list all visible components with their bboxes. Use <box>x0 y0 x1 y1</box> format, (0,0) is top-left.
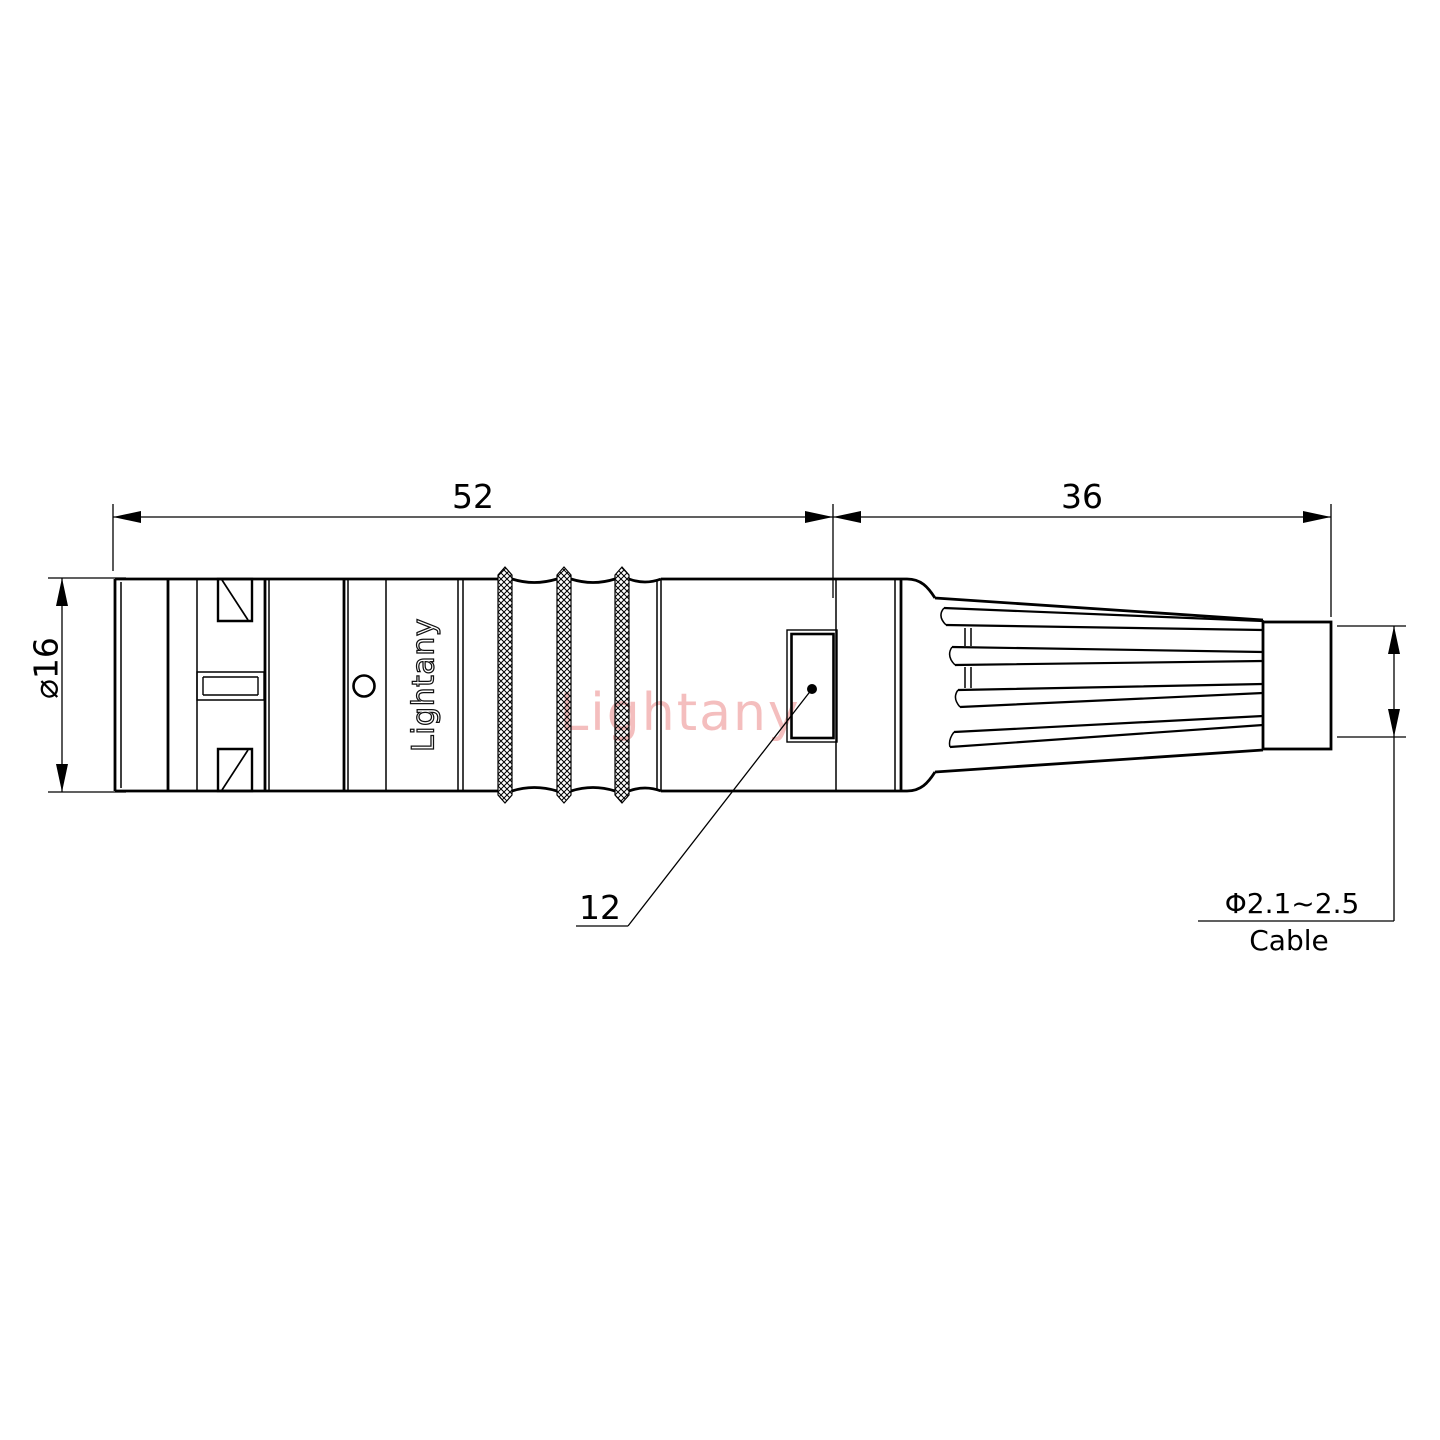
dimension-body-diameter: ⌀16 <box>27 578 127 792</box>
dim-36-label: 36 <box>1061 477 1103 516</box>
knurl-band <box>615 567 629 803</box>
cable-diameter-callout: Φ2.1~2.5 Cable <box>1198 626 1406 957</box>
ref-12-label: 12 <box>579 888 621 927</box>
dim-arrow-right <box>1303 511 1331 523</box>
watermark-text: Lightany <box>559 683 800 743</box>
dim-52-label: 52 <box>452 477 494 516</box>
dim-arrow-left <box>833 511 861 523</box>
cable-end-cap <box>1263 622 1331 749</box>
middle-recess <box>197 672 264 700</box>
strain-relief-boot <box>907 579 1331 791</box>
latch-facets <box>222 580 248 790</box>
cable-diameter-label: Φ2.1~2.5 <box>1225 887 1360 920</box>
knurl-band <box>557 567 571 803</box>
dim-36-lines <box>833 504 1331 617</box>
dim-arrow-down <box>56 764 68 792</box>
connector-technical-drawing: Lightany Lightany <box>0 0 1440 1440</box>
knurl-band <box>498 567 512 803</box>
drawing-canvas: Lightany Lightany <box>0 0 1440 1440</box>
dim-arrow-right <box>805 511 833 523</box>
dim-arrow-left <box>113 511 141 523</box>
dim-52-lines <box>113 504 833 598</box>
boot-flute-ridges <box>944 608 1263 747</box>
cable-dim-lines <box>1198 626 1406 921</box>
dim-arrow-up <box>1388 626 1400 654</box>
vent-hole <box>354 676 375 697</box>
brand-marking-text: Lightany <box>407 618 442 752</box>
dim-arrow-down <box>1388 709 1400 737</box>
dim-16-label: ⌀16 <box>27 637 66 699</box>
dim-arrow-up <box>56 578 68 606</box>
latch-cutouts <box>218 579 252 791</box>
dimension-boot-length: 36 <box>833 477 1331 617</box>
ref-12-leader-dot <box>807 684 817 694</box>
cable-label: Cable <box>1249 924 1329 957</box>
